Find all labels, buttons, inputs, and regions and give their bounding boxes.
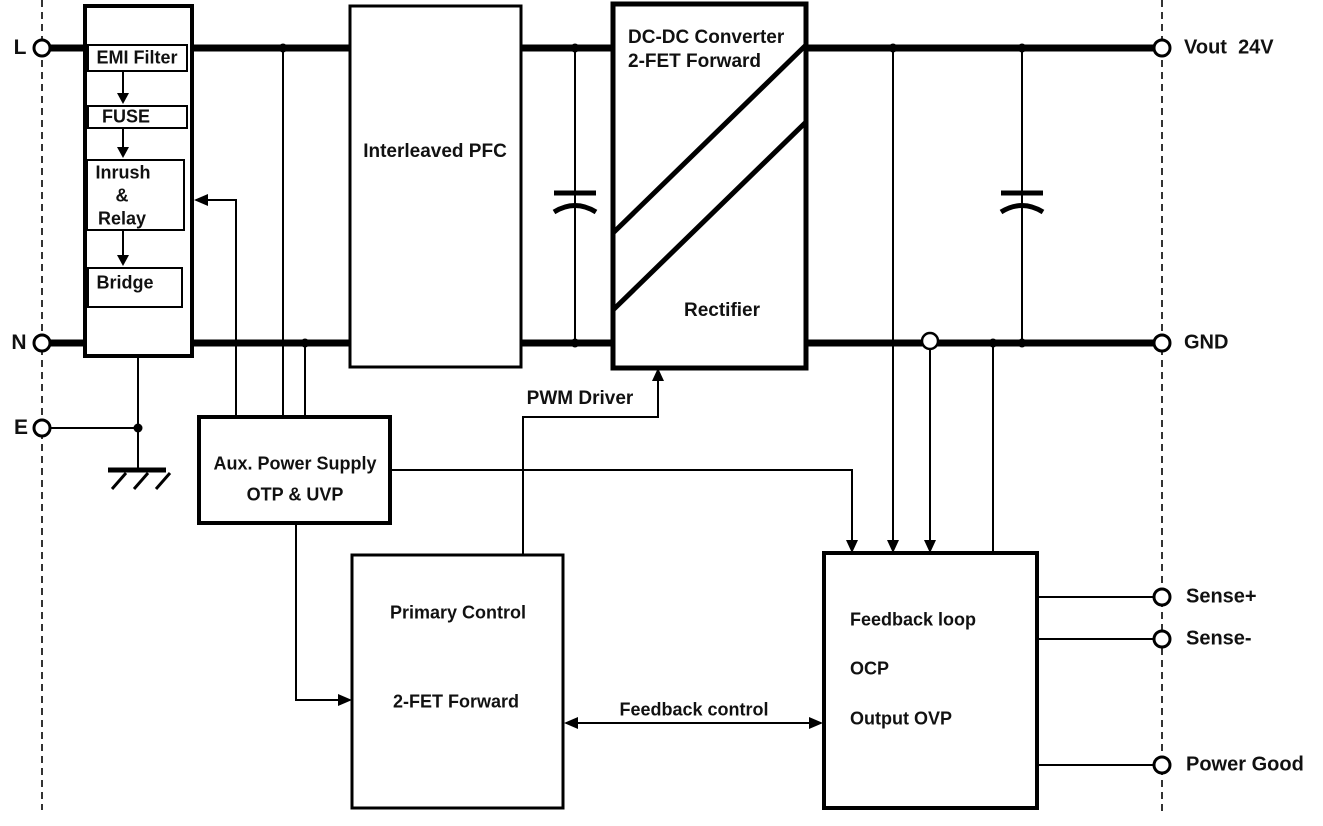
terminal-sense-minus [1154,631,1170,647]
arrowhead-left-icon [194,194,208,206]
inrush-label-line2: & [116,187,129,206]
primary-label-line1: Primary Control [390,604,526,623]
arrowhead-right-icon [338,694,352,706]
wire-hop-icon [922,333,938,349]
earth-ground-icon [108,470,170,489]
terminal-label-power-good: Power Good [1186,755,1304,776]
rectifier-label: Rectifier [684,301,760,321]
arrowhead-left-icon [564,717,578,729]
terminal-label-e: E [14,417,28,439]
inrush-label-line3: Relay [98,210,146,229]
feedback-label-line1: Feedback loop [850,611,976,630]
wire-aux-to-feedback [390,470,852,550]
terminal-label-l: L [14,37,27,59]
primary-label-line2: 2-FET Forward [393,693,519,712]
terminal-power-good [1154,757,1170,773]
terminal-gnd [1154,335,1170,351]
pfc-block [350,6,521,367]
junction-dot [571,44,580,53]
terminal-label-vout: Vout 24V [1184,38,1274,59]
terminal-e [34,420,50,436]
junction-dot [279,44,288,53]
terminal-label-gnd: GND [1184,333,1228,354]
feedback-control-label: Feedback control [619,701,768,720]
fuse-label: FUSE [102,108,150,127]
terminal-label-sense-plus: Sense+ [1186,587,1257,608]
terminal-n [34,335,50,351]
junction-dot [989,339,998,348]
junction-dot [134,424,143,433]
junction-dot [889,44,898,53]
wire-aux-to-primary [296,523,349,700]
junction-dot [571,339,580,348]
bridge-label: Bridge [96,274,153,293]
terminal-label-n: N [11,332,26,354]
feedback-label-line2: OCP [850,660,889,679]
junction-dot [1018,339,1027,348]
pwm-driver-label: PWM Driver [527,389,634,409]
arrowhead-right-icon [809,717,823,729]
power-supply-block-diagram: L N E Vout 24V GND Sense+ Sense- Power G… [0,0,1323,826]
dcdc-title-line1: DC-DC Converter [628,28,784,48]
terminal-label-sense-minus: Sense- [1186,629,1252,650]
terminal-sense-plus [1154,589,1170,605]
junction-dot [1018,44,1027,53]
feedback-label-line3: Output OVP [850,710,952,729]
aux-label-line2: OTP & UVP [247,486,344,505]
inrush-label-line1: Inrush [95,164,150,183]
terminal-vout [1154,40,1170,56]
feedback-loop-block [824,553,1037,808]
aux-label-line1: Aux. Power Supply [213,455,376,474]
pfc-label: Interleaved PFC [363,142,507,162]
junction-dot [301,339,310,348]
terminal-l [34,40,50,56]
wire-aux-to-relay [196,200,236,417]
emi-filter-label: EMI Filter [96,49,177,68]
primary-control-block [352,555,563,808]
dcdc-title-line2: 2-FET Forward [628,52,761,72]
